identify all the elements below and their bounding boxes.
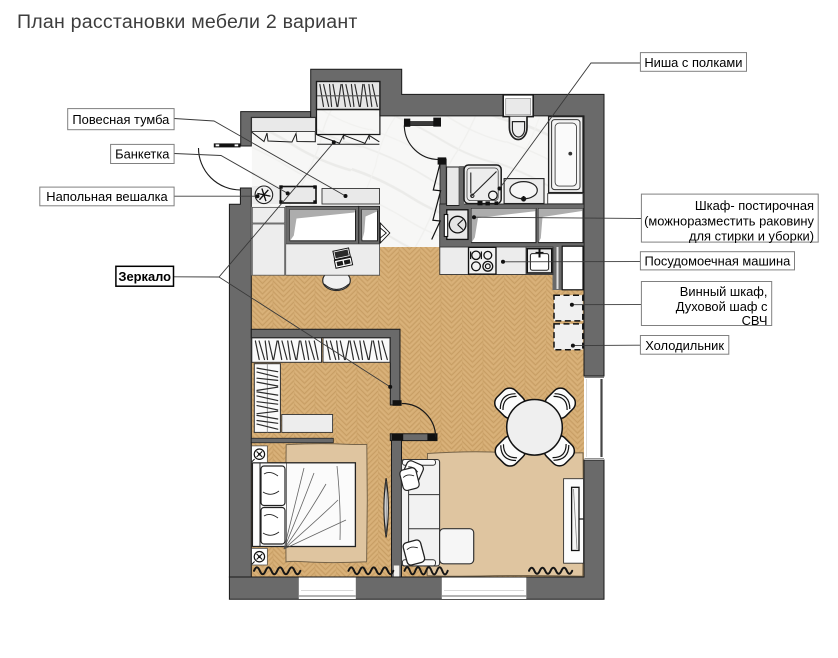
svg-text:Холодильник: Холодильник — [645, 338, 724, 353]
svg-text:План расстановки мебели 2 вари: План расстановки мебели 2 вариант — [17, 11, 358, 33]
svg-text:для стирки и уборки): для стирки и уборки) — [689, 229, 814, 244]
svg-text:Повесная тумба: Повесная тумба — [72, 112, 170, 127]
svg-text:(можноразместить раковину: (можноразместить раковину — [644, 213, 814, 228]
svg-text:Посудомоечная машина: Посудомоечная машина — [645, 254, 792, 269]
svg-text:Винный шкаф,: Винный шкаф, — [680, 284, 768, 299]
svg-text:Духовой шаф с: Духовой шаф с — [676, 299, 768, 314]
svg-text:СВЧ: СВЧ — [742, 313, 768, 328]
svg-text:Напольная вешалка: Напольная вешалка — [46, 189, 168, 204]
svg-text:Шкаф- постирочная: Шкаф- постирочная — [695, 198, 814, 213]
svg-text:Зеркало: Зеркало — [118, 269, 171, 284]
svg-text:Банкетка: Банкетка — [115, 147, 170, 162]
svg-text:Ниша с полками: Ниша с полками — [644, 55, 742, 70]
